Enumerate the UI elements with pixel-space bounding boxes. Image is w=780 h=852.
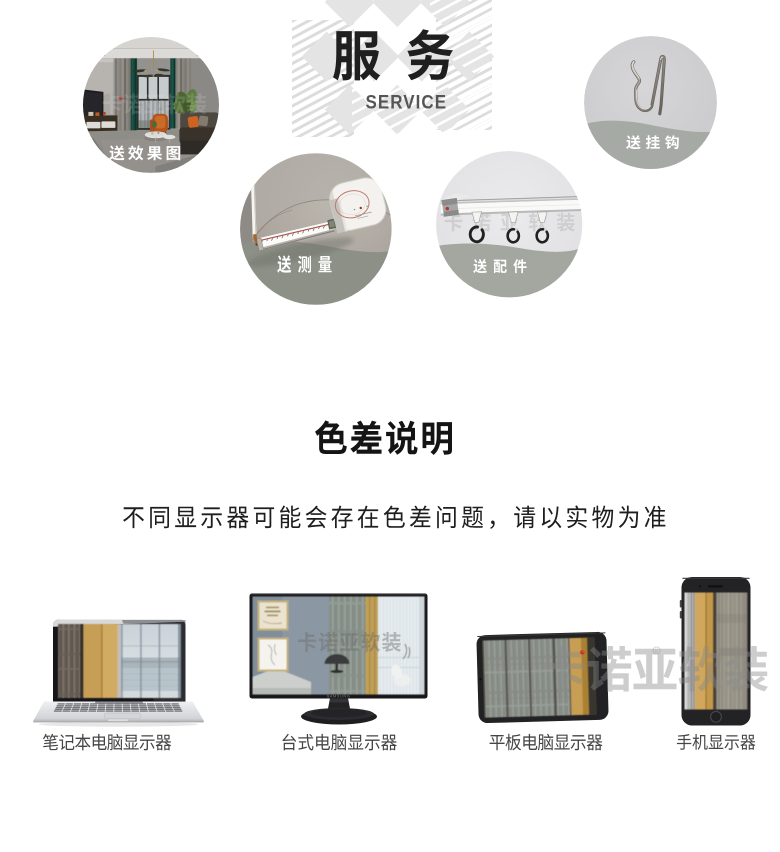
svg-text:SERVICE: SERVICE xyxy=(366,92,448,113)
svg-text:R: R xyxy=(655,649,659,655)
